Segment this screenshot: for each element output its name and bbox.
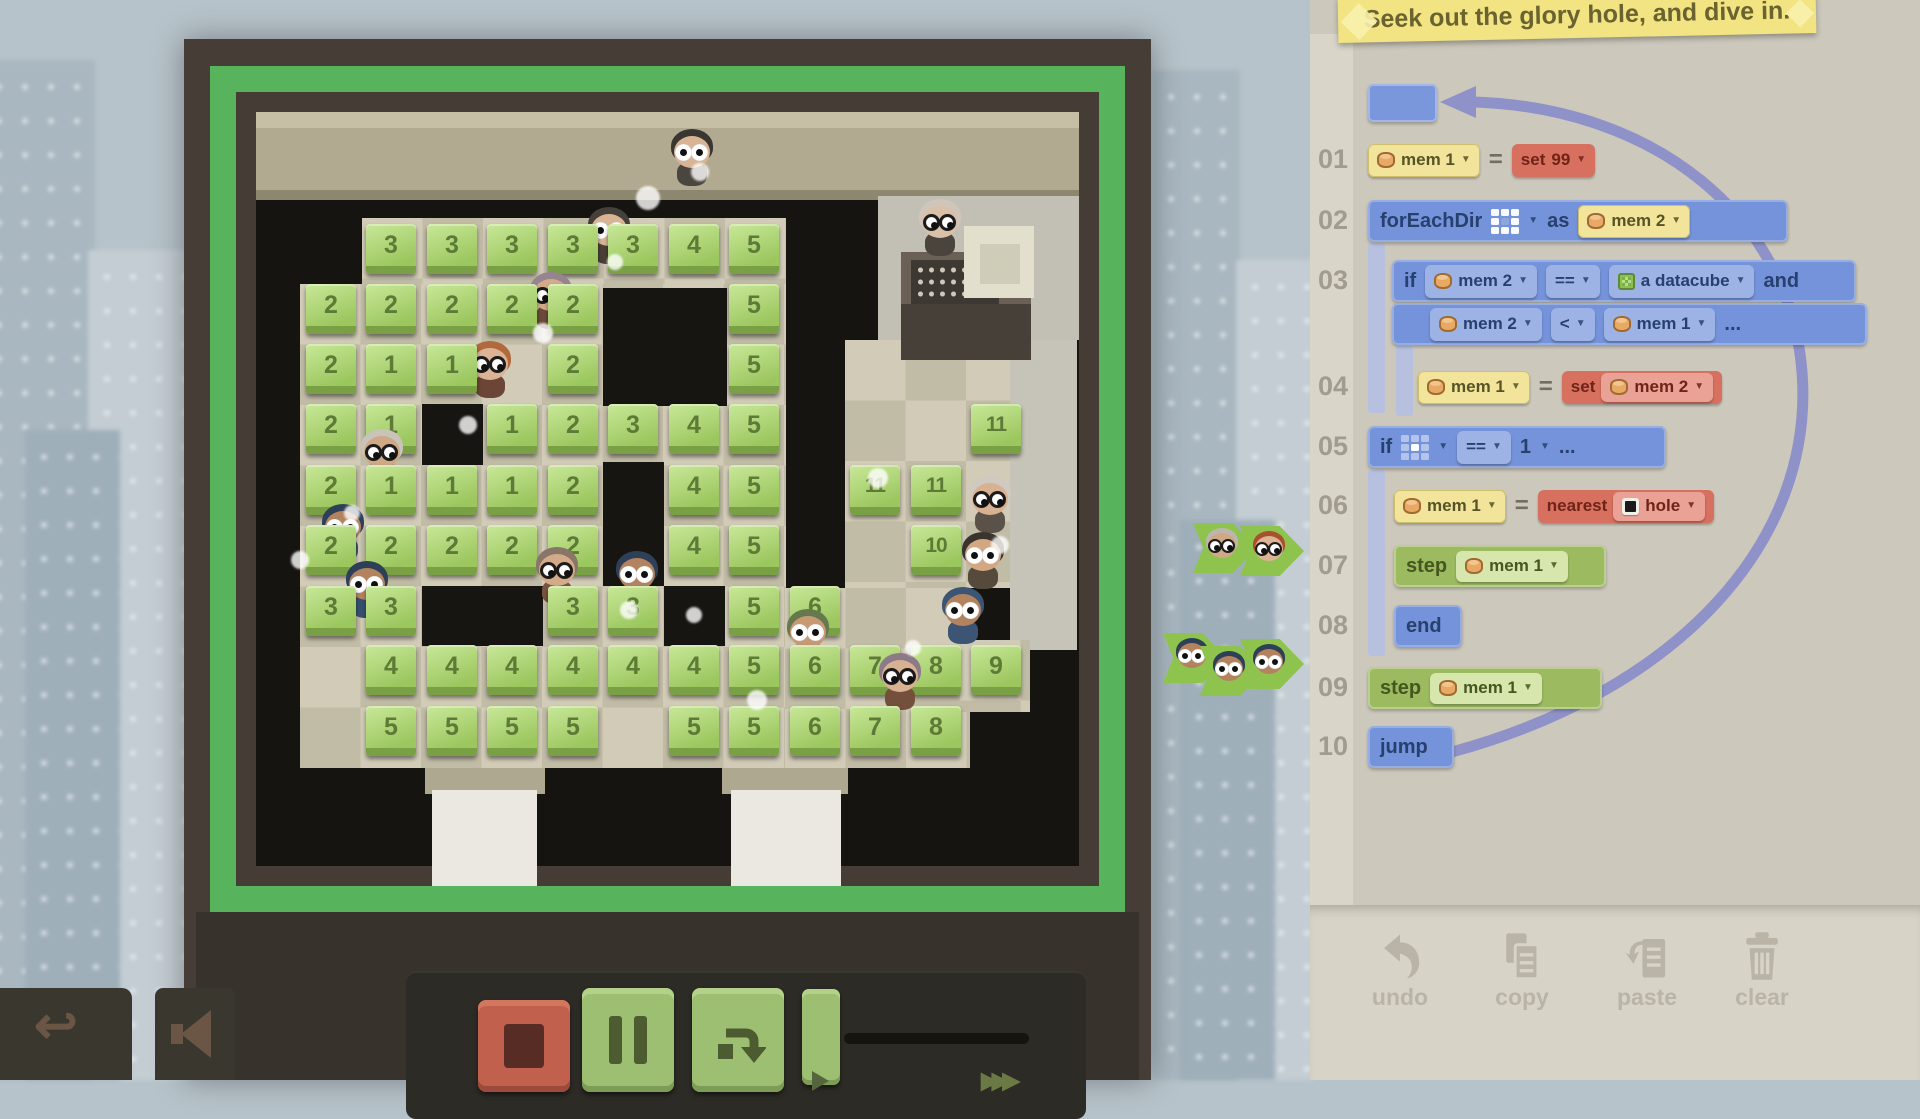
memory-icon [1439,680,1457,696]
memory-icon [1427,379,1445,395]
step-button[interactable] [692,988,784,1092]
pause-icon [609,1016,622,1064]
code-block-green[interactable]: stepmem 1▼ [1394,545,1606,587]
exit-corridor-right [731,866,841,886]
code-word: mem 1 [1451,377,1505,397]
copy-icon [1498,930,1546,982]
building [1180,520,1275,1080]
code-word: mem 1 [1427,496,1481,516]
code-word: mem 1 [1463,678,1517,698]
memory-icon [1587,213,1605,229]
code-line-04: mem 1▼=setmem 2▼ [1418,365,1722,409]
center-direction-icon [1401,435,1429,460]
code-chip-red[interactable]: set99▼ [1512,144,1595,177]
dropdown-caret-icon[interactable]: ▼ [1523,683,1533,693]
code-chip-blue-in[interactable]: ==▼ [1457,431,1511,464]
dropdown-caret-icon[interactable]: ▼ [1518,276,1528,286]
code-chip-yellow[interactable]: mem 2▼ [1578,205,1690,238]
datacube-icon [1618,273,1635,290]
code-chip-yellow[interactable]: mem 1▼ [1368,144,1480,177]
code-word: mem 2 [1611,211,1665,231]
code-word: mem 2 [1463,314,1517,334]
memory-icon [1610,379,1628,395]
code-word: < [1560,314,1570,334]
game-room [256,112,1079,866]
pause-button[interactable] [582,988,674,1092]
paste-icon [1623,930,1671,982]
goal-text: Seek out the glory hole, and dive in. [1364,0,1791,34]
back-arrow-icon: ↩ [34,996,78,1056]
code-block-blue[interactable]: ifmem 2▼==▼a datacube▼and [1392,260,1856,302]
code-word: step [1406,555,1447,578]
paste-label: paste [1605,984,1689,1011]
code-chip-blue-in[interactable]: mem 1▼ [1604,308,1716,341]
code-block-row[interactable]: mem 1▼=set99▼ [1368,144,1595,177]
memory-icon [1465,558,1483,574]
code-chip-red-in[interactable]: mem 2▼ [1601,373,1713,402]
code-word: mem 1 [1637,314,1691,334]
dropdown-caret-icon[interactable]: ▼ [1487,501,1497,511]
stop-button[interactable] [478,1000,570,1092]
dropdown-caret-icon[interactable]: ▼ [1694,382,1704,392]
code-word: as [1547,210,1569,233]
code-line-08: end [1394,604,1462,648]
code-word: mem 1 [1401,150,1455,170]
dropdown-caret-icon[interactable]: ▼ [1523,319,1533,329]
code-word: step [1380,677,1421,700]
dropdown-caret-icon[interactable]: ▼ [1576,319,1586,329]
code-word: 99 [1551,150,1570,170]
dropdown-caret-icon[interactable]: ▼ [1438,442,1448,452]
code-line-02: forEachDir▼asmem 2▼ [1368,199,1788,243]
dropdown-caret-icon[interactable]: ▼ [1581,276,1591,286]
hole-icon [1622,498,1639,515]
code-word: ... [1724,313,1741,336]
jump-target-block[interactable] [1368,84,1437,122]
memory-icon [1613,316,1631,332]
line-number-gutter [1310,34,1353,910]
code-word: jump [1380,736,1428,759]
clear-label: clear [1720,984,1804,1011]
dropdown-caret-icon[interactable]: ▼ [1540,442,1550,452]
game-machine: ▶▶▶ [184,39,1151,1080]
code-chip-red[interactable]: setmem 2▼ [1562,371,1722,404]
code-line-06: mem 1▼=nearesthole▼ [1394,484,1714,528]
copy-button[interactable]: copy [1480,930,1564,1011]
dropdown-caret-icon[interactable]: ▼ [1686,501,1696,511]
code-word: and [1763,270,1799,293]
dropdown-caret-icon[interactable]: ▼ [1697,319,1707,329]
code-line-10: jump [1368,725,1454,769]
code-word: mem 2 [1458,271,1512,291]
step-over-icon [710,1012,766,1068]
code-word: mem 2 [1634,377,1688,397]
dropdown-caret-icon[interactable]: ▼ [1492,442,1502,452]
code-block-blue[interactable]: forEachDir▼asmem 2▼ [1368,200,1788,242]
code-chip-grn-in[interactable]: mem 1▼ [1430,673,1542,704]
code-line-03: ifmem 2▼==▼a datacube▼and [1392,259,1856,303]
equals-sign: = [1515,492,1529,520]
paste-button[interactable]: paste [1605,930,1689,1011]
code-line-05: if▼==▼1▼... [1368,425,1666,469]
memory-icon [1434,273,1452,289]
play-icon [812,1071,829,1091]
code-word: set [1571,377,1596,397]
dropdown-caret-icon[interactable]: ▼ [1671,216,1681,226]
mute-button[interactable] [155,988,235,1080]
code-chip-blue-in[interactable]: mem 2▼ [1425,265,1537,298]
memory-icon [1377,152,1395,168]
code-chip-blue-in[interactable]: ==▼ [1546,265,1600,298]
code-chip-blue-in[interactable]: <▼ [1551,308,1595,341]
code-word: == [1555,271,1575,291]
building [25,430,120,1080]
code-block-row[interactable]: mem 1▼=setmem 2▼ [1418,371,1722,404]
undo-label: undo [1358,984,1442,1011]
clear-button[interactable]: clear [1720,930,1804,1011]
memory-icon [1439,316,1457,332]
stop-icon [504,1024,544,1068]
exit-corridor-left [432,866,537,886]
dropdown-caret-icon[interactable]: ▼ [1528,216,1538,226]
code-word: mem 1 [1489,556,1543,576]
back-button[interactable]: ↩ [0,988,132,1080]
code-word: set [1521,150,1546,170]
dropdown-caret-icon[interactable]: ▼ [1576,155,1586,165]
code-line-07: stepmem 1▼ [1394,544,1606,588]
code-block-blue[interactable]: jump [1368,726,1454,768]
code-block-blue[interactable]: mem 2▼<▼mem 1▼... [1392,303,1867,345]
code-word: if [1404,270,1416,293]
code-word: forEachDir [1380,210,1482,233]
code-line-03b: mem 2▼<▼mem 1▼... [1392,302,1867,346]
code-block-blue[interactable]: if▼==▼1▼... [1368,426,1666,468]
dropdown-caret-icon[interactable]: ▼ [1736,276,1746,286]
speed-slider-track[interactable] [844,1033,1029,1044]
code-line-09: stepmem 1▼ [1368,666,1602,710]
dropdown-caret-icon[interactable]: ▼ [1549,561,1559,571]
code-chip-blue-in[interactable]: mem 2▼ [1430,308,1542,341]
code-chip-red[interactable]: nearesthole▼ [1538,490,1714,523]
code-chip-yellow[interactable]: mem 1▼ [1418,371,1530,404]
dropdown-caret-icon[interactable]: ▼ [1511,382,1521,392]
code-block-green[interactable]: stepmem 1▼ [1368,667,1602,709]
playback-console: ▶▶▶ [406,971,1086,1119]
undo-button[interactable]: undo [1358,930,1442,1011]
code-word: hole [1645,496,1680,516]
code-chip-red-in[interactable]: hole▼ [1613,492,1705,521]
code-chip-yellow[interactable]: mem 1▼ [1394,490,1506,523]
undo-icon [1376,930,1424,982]
copy-label: copy [1480,984,1564,1011]
trash-icon [1738,930,1786,982]
code-chip-grn-in[interactable]: mem 1▼ [1456,551,1568,582]
equals-sign: = [1489,146,1503,174]
code-block-blue[interactable]: end [1394,605,1462,647]
code-block-row[interactable]: mem 1▼=nearesthole▼ [1394,490,1714,523]
code-word: end [1406,615,1442,638]
code-chip-blue-in[interactable]: a datacube▼ [1609,265,1755,298]
code-word: if [1380,436,1392,459]
speaker-icon [181,1010,211,1058]
code-line-01: mem 1▼=set99▼ [1368,138,1595,182]
code-word: nearest [1547,496,1607,516]
memory-icon [1403,498,1421,514]
fast-forward-icon: ▶▶▶ [981,1067,1013,1094]
code-word: ... [1559,436,1576,459]
code-word: == [1466,437,1486,457]
equals-sign: = [1539,373,1553,401]
code-word: a datacube [1641,271,1730,291]
all-directions-icon [1491,209,1519,234]
dropdown-caret-icon[interactable]: ▼ [1461,155,1471,165]
code-word: 1 [1520,436,1531,459]
